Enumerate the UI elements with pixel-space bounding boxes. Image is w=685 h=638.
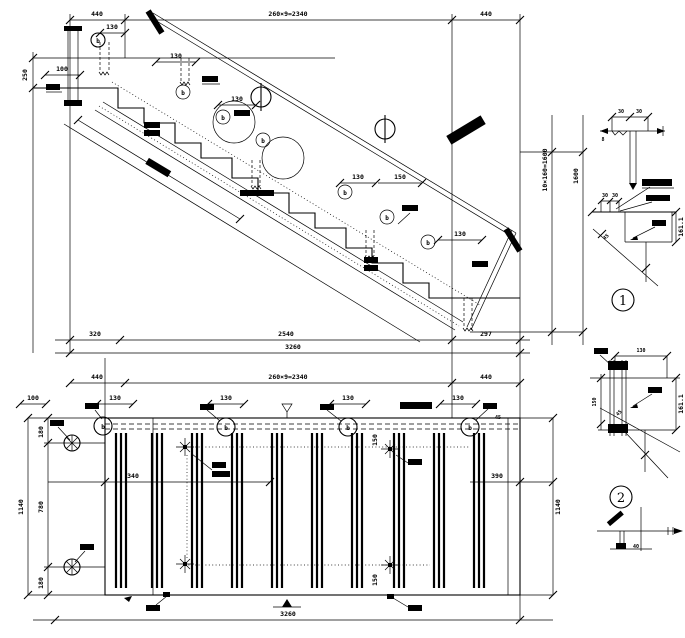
svg-text:30: 30 [636,109,642,115]
dim-8: 8 [601,137,604,143]
plan-view: 440 260×9=2340 440 100 130 130 130 130 [16,358,562,624]
svg-text:45: 45 [602,233,610,241]
svg-text:130: 130 [220,394,232,402]
svg-text:b: b [343,190,347,197]
svg-text:130: 130 [109,394,121,402]
stair-profile [33,88,520,298]
dim-1140-right: 1140 [554,499,562,515]
dim-390: 390 [491,472,503,480]
stair-cad-drawing: 440 260×9=2340 440 130 250 100 [0,0,685,638]
svg-text:30: 30 [612,193,618,199]
svg-text:b: b [385,215,389,222]
svg-text:b: b [426,240,430,247]
detail2-number: 2 [617,491,625,506]
corner-cut-marker [124,596,132,602]
plan-dim-run: 260×9=2340 [268,373,307,381]
dim-landing-right: 440 [480,10,492,18]
plan-dim-440R: 440 [480,373,492,381]
detail1-elevation: 161.1 [677,217,685,237]
detail2-dim-150: 150 [592,397,598,406]
svg-text:b: b [261,138,265,145]
plan-dim-100: 100 [27,394,39,402]
detail2-elevation: 161.1 [677,394,685,414]
section-bottom-dims: 320 2540 297 3260 [55,330,530,357]
svg-text:150: 150 [371,434,379,446]
dim-landing-left: 440 [91,10,103,18]
step-dim-5: 130 [454,230,466,238]
plan-bottom-dims: 3260 [33,592,553,624]
svg-text:30: 30 [618,109,624,115]
detail-2: 130 150 161.1 45 2 [590,348,685,508]
cad-drawing-page: 440 260×9=2340 440 130 250 100 [0,0,685,638]
dim-45: 45 [495,415,501,421]
cut-bubble-2 [375,115,395,143]
detail-1: 30 30 161.1 45 1 [588,179,685,311]
section-cut-marker [282,599,292,607]
dim-297: 297 [480,330,492,338]
step-dim-2: 130 [231,95,243,103]
svg-text:b: b [221,115,225,122]
plan-dim-440L: 440 [91,373,103,381]
letter-markers: b b b b b b [176,85,435,249]
step-dim-1: 130 [170,52,182,60]
detail-circle-b [262,137,304,179]
svg-text:b: b [181,90,185,97]
svg-text:b: b [346,425,350,432]
section-height-dims: 10×160=1600 1600 [470,148,587,336]
anchor-slot-dashed: b [91,33,109,75]
detail2-dim-130: 130 [636,348,645,354]
dim-40: 40 [633,544,639,550]
level-marker [282,404,292,418]
coping-detail: 30 30 8 [600,109,665,190]
railing [146,9,523,330]
dim-100: 100 [56,65,68,73]
step-dim-3: 130 [352,173,364,181]
plan-left-dims: 180 780 180 1140 [17,414,105,599]
marker-letter: b [96,38,100,45]
cross-leaders [192,454,422,477]
dim-2540: 2540 [278,330,294,338]
detail-circle-a [213,101,255,143]
corner-detail: 40 [597,507,683,551]
svg-text:130: 130 [452,394,464,402]
plan-inner-dims: 340 150 150 [48,434,379,586]
dim-3260-section: 3260 [285,343,301,351]
section-top-dims: 440 260×9=2340 440 130 [66,10,524,37]
svg-text:130: 130 [342,394,354,402]
dim-risers: 10×160=1600 [541,148,549,191]
dim-3260-plan: 3260 [280,610,296,618]
dim-180-bottom: 180 [37,577,45,589]
dim-1140-left: 1140 [17,499,25,515]
step-dim-4: 150 [394,173,406,181]
dim-340: 340 [127,472,139,480]
dim-180-top: 180 [37,426,45,438]
tread-strips [116,433,484,588]
svg-text:150: 150 [371,574,379,586]
svg-text:30: 30 [602,193,608,199]
svg-text:b: b [101,424,105,431]
svg-text:b: b [468,425,472,432]
dim-780: 780 [37,501,45,513]
svg-text:b: b [224,425,228,432]
dim-250: 250 [21,69,29,81]
stringer-beam [64,82,480,342]
dim-run-total: 260×9=2340 [268,10,307,18]
dim-height-total: 1600 [572,168,580,184]
dim-320: 320 [89,330,101,338]
dim-130-top: 130 [106,23,118,31]
detail1-number: 1 [619,294,627,309]
section-view: 440 260×9=2340 440 130 250 100 [21,9,587,620]
